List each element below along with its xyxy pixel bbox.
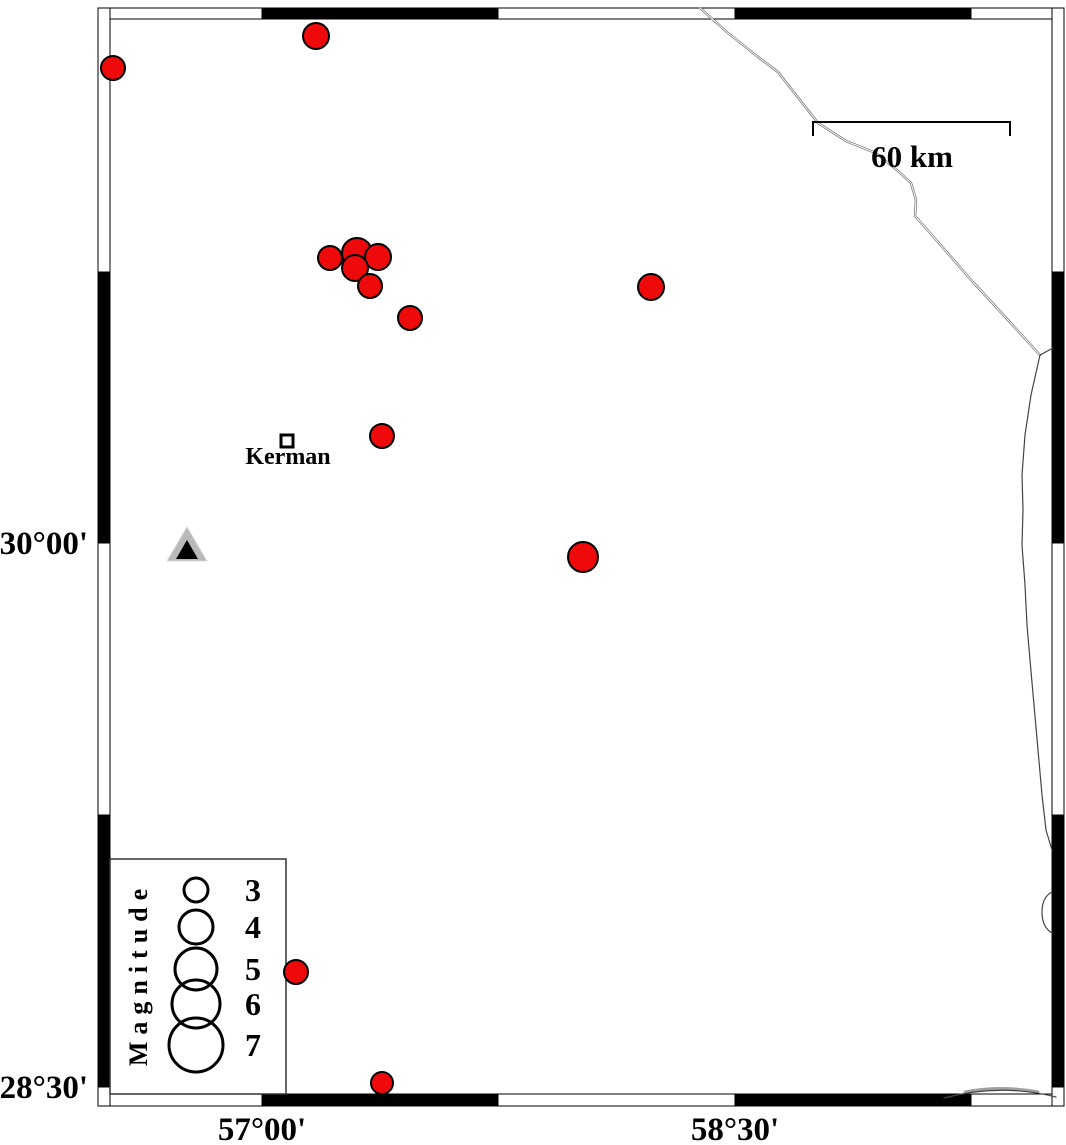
figure-canvas: Magnitude34567 Kerman60 km 30°00'28°30'5… [0,0,1066,1145]
frame-band-left-2 [98,543,110,815]
earthquake-point-1 [101,56,125,80]
seismicity-map: Magnitude34567 Kerman60 km 30°00'28°30'5… [0,0,1066,1145]
legend-title: Magnitude [124,882,153,1066]
latitude-label-0: 30°00' [0,526,88,562]
earthquake-point-0 [303,23,329,49]
frame-band-right-1 [1052,272,1064,543]
frame-band-left-0 [98,8,110,272]
frame-band-right-0 [1052,8,1064,272]
frame-band-top-3 [735,8,971,19]
longitude-label-0: 57°00' [218,1112,306,1145]
legend-label-mag-6: 6 [245,986,261,1022]
earthquake-point-8 [638,274,664,300]
frame-band-right-2 [1052,543,1064,815]
longitude-label-1: 58°30' [691,1112,779,1145]
frame-band-left-4 [98,1087,110,1106]
legend-label-mag-4: 4 [245,909,261,945]
frame-band-left-3 [98,815,110,1087]
legend-label-mag-3: 3 [245,872,261,908]
latitude-label-1: 28°30' [0,1070,88,1106]
earthquake-point-12 [371,1072,393,1094]
frame-band-right-3 [1052,815,1064,1087]
earthquake-point-9 [370,424,394,448]
frame-band-top-0 [98,8,262,19]
frame-band-bottom-1 [262,1094,498,1106]
magnitude-legend: Magnitude34567 [110,859,286,1094]
legend-label-mag-5: 5 [245,951,261,987]
frame-band-bottom-0 [98,1094,262,1106]
earthquake-point-2 [318,246,342,270]
earthquake-point-4 [365,244,391,270]
scale-bar-label: 60 km [871,139,953,174]
earthquake-point-6 [358,274,382,298]
frame-band-bottom-2 [498,1094,735,1106]
frame-band-left-1 [98,272,110,543]
earthquake-point-10 [568,542,598,572]
city-label-kerman: Kerman [245,444,330,470]
frame-band-top-2 [498,8,735,19]
frame-band-top-1 [262,8,498,19]
earthquake-point-11 [284,960,308,984]
legend-label-mag-7: 7 [245,1027,261,1063]
frame-band-top-4 [971,8,1064,19]
earthquake-point-7 [398,306,422,330]
frame-band-bottom-3 [735,1094,971,1106]
